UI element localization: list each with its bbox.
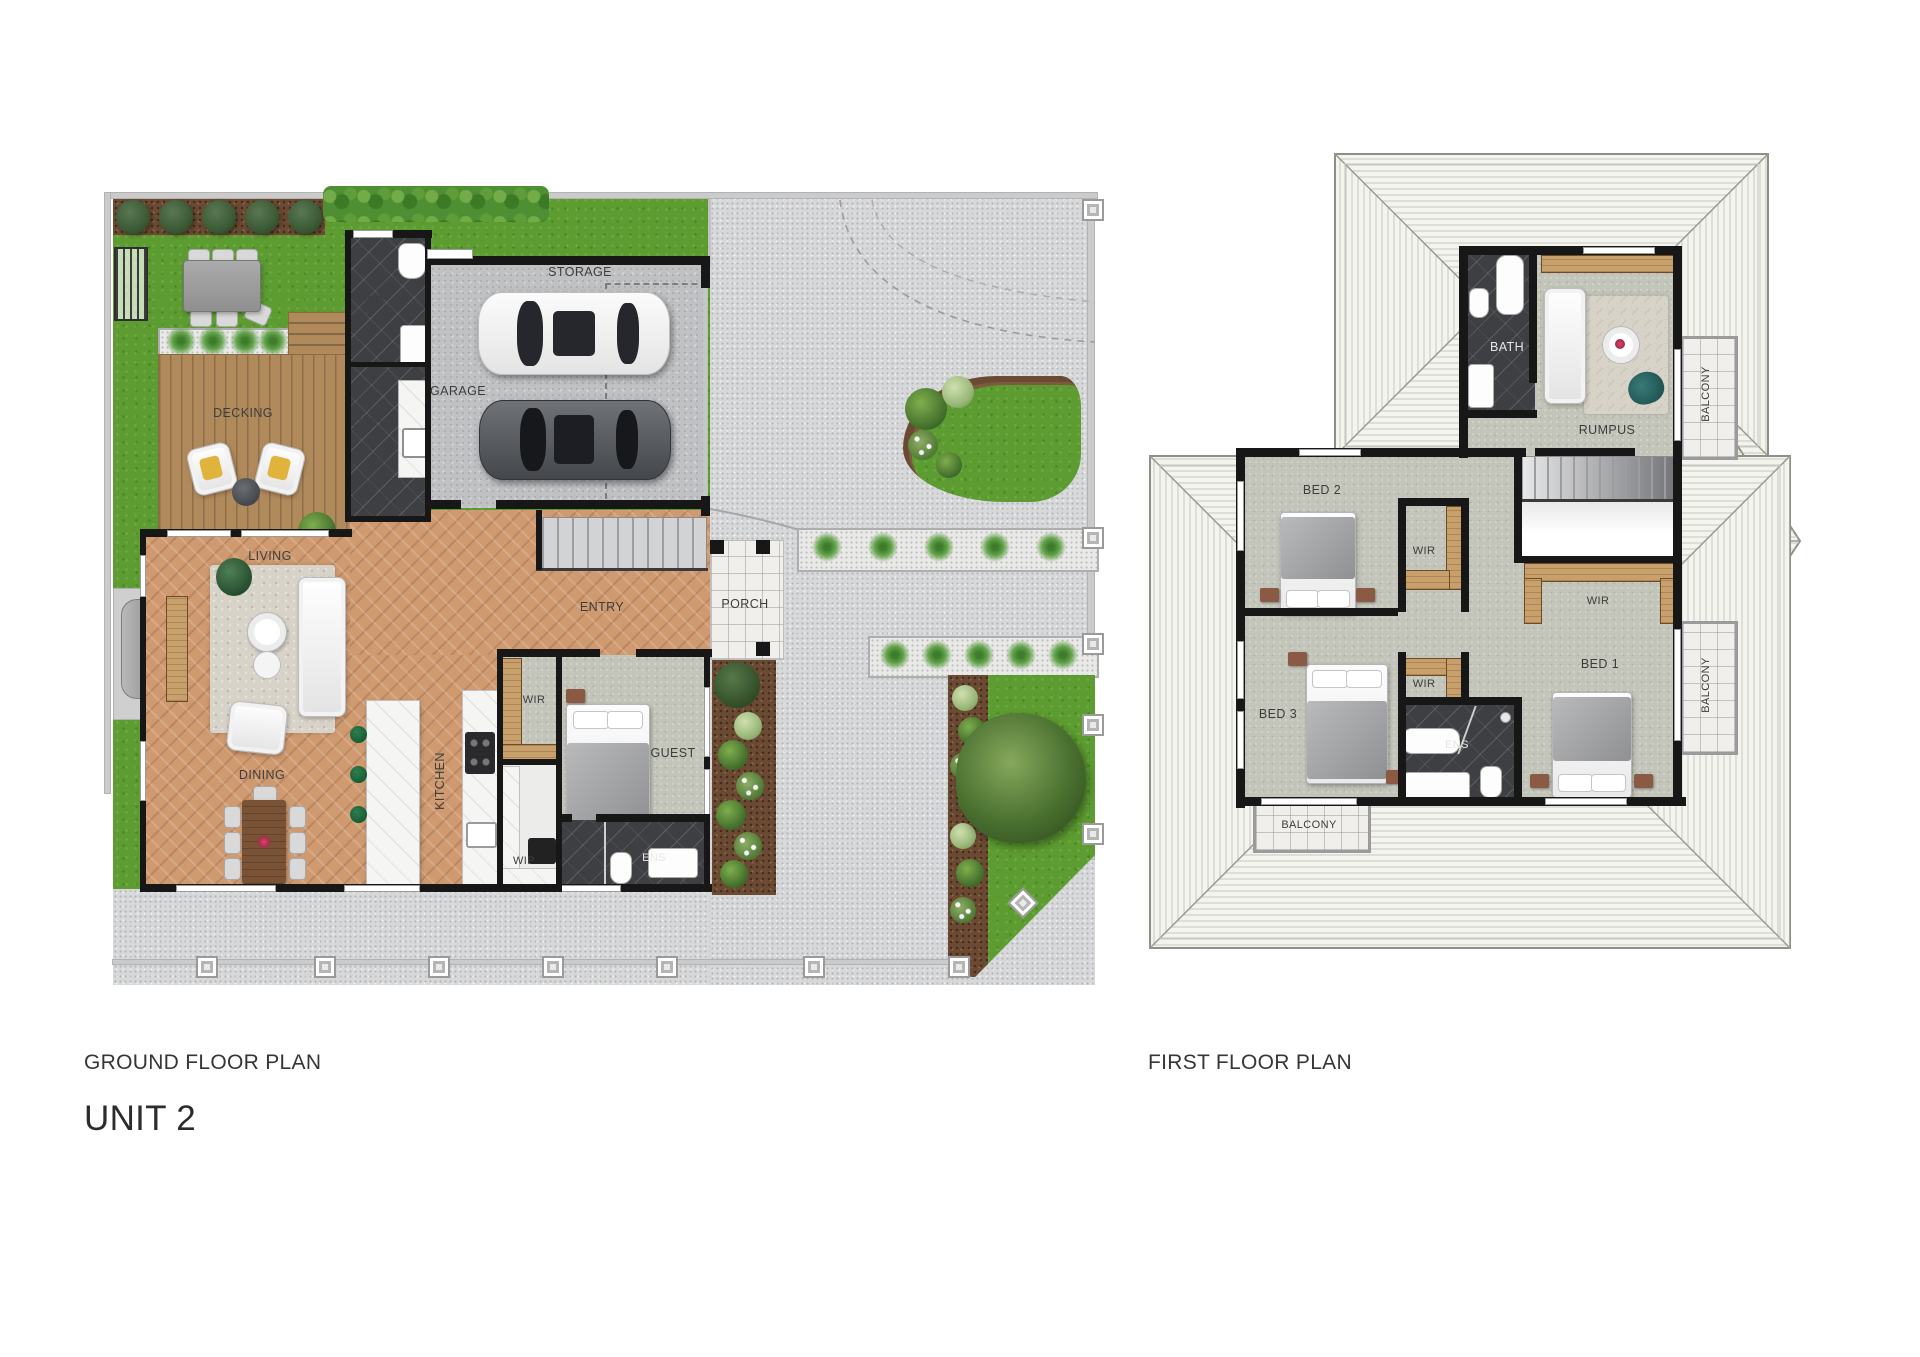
room-label-bed1: BED 1 [1581, 657, 1619, 671]
room-label-wir-bed2: WIR [1413, 545, 1436, 557]
window [1238, 482, 1243, 550]
room-label-balcony-bottom: BALCONY [1281, 819, 1336, 831]
side-table-icon [1356, 588, 1375, 602]
stair-void [1520, 502, 1674, 560]
room-label-balcony-right: BALCONY [1700, 657, 1712, 712]
room-label-balcony-top: BALCONY [1700, 366, 1712, 421]
wall [1461, 498, 1469, 612]
vanity-icon [1404, 772, 1470, 800]
room-label-rumpus: RUMPUS [1579, 423, 1636, 437]
wall [1535, 448, 1635, 456]
wall [1398, 498, 1406, 612]
robe-bench [1524, 578, 1542, 624]
caption-ground-floor: GROUND FLOOR PLAN [84, 1051, 321, 1075]
tv-unit-icon [1541, 255, 1677, 273]
caption-first-floor: FIRST FLOOR PLAN [1148, 1051, 1352, 1075]
wall [1236, 448, 1526, 457]
wall [1461, 652, 1469, 703]
window [1300, 450, 1360, 455]
wall [1236, 608, 1398, 616]
toilet-icon [1480, 766, 1502, 798]
bed1-icon [1552, 692, 1632, 798]
robe-bench [1404, 570, 1450, 590]
wall [1514, 697, 1522, 803]
wall [1459, 410, 1537, 418]
caption-unit: UNIT 2 [84, 1099, 196, 1139]
robe-bench [1524, 563, 1678, 582]
wall [1514, 453, 1522, 563]
window [1584, 248, 1654, 253]
room-label-wir-bed3: WIR [1413, 678, 1436, 690]
wall [1398, 697, 1520, 705]
bed3-icon [1306, 664, 1388, 784]
room-label-bed2: BED 2 [1303, 483, 1341, 497]
window [1546, 799, 1626, 804]
wall [1398, 652, 1406, 803]
stairs-first [1520, 456, 1676, 503]
window [1238, 712, 1243, 768]
side-table-icon [1260, 588, 1279, 602]
wall [1398, 498, 1469, 506]
sofa-icon [1544, 288, 1586, 404]
wall [1529, 251, 1537, 383]
side-table-icon [1530, 774, 1549, 788]
window [1262, 799, 1356, 804]
wall [1459, 246, 1468, 458]
bed2-icon [1280, 512, 1356, 614]
bathtub-icon [1496, 255, 1524, 315]
room-label-ens-first: ENS [1445, 739, 1469, 751]
side-table-icon [1288, 652, 1307, 666]
side-table-icon [1634, 774, 1653, 788]
window [1238, 642, 1243, 698]
floor-plan-sheet: STORAGE PWD L'DRY GARAGE DECKING LIVING … [0, 0, 1920, 1357]
vanity-icon [1468, 364, 1494, 408]
toilet-icon [1469, 288, 1489, 318]
room-label-wir-bed1: WIR [1587, 595, 1610, 607]
wall [1520, 556, 1680, 563]
flowers-icon [1615, 339, 1625, 349]
room-label-bath: BATH [1490, 340, 1524, 354]
robe-bench [1402, 658, 1452, 676]
room-label-bed3: BED 3 [1259, 707, 1297, 721]
window [1675, 350, 1680, 440]
window [1675, 630, 1680, 740]
first-floor-plan: BATH RUMPUS BED 2 WIR WIR BED 1 BED 3 WI… [0, 0, 1920, 1357]
